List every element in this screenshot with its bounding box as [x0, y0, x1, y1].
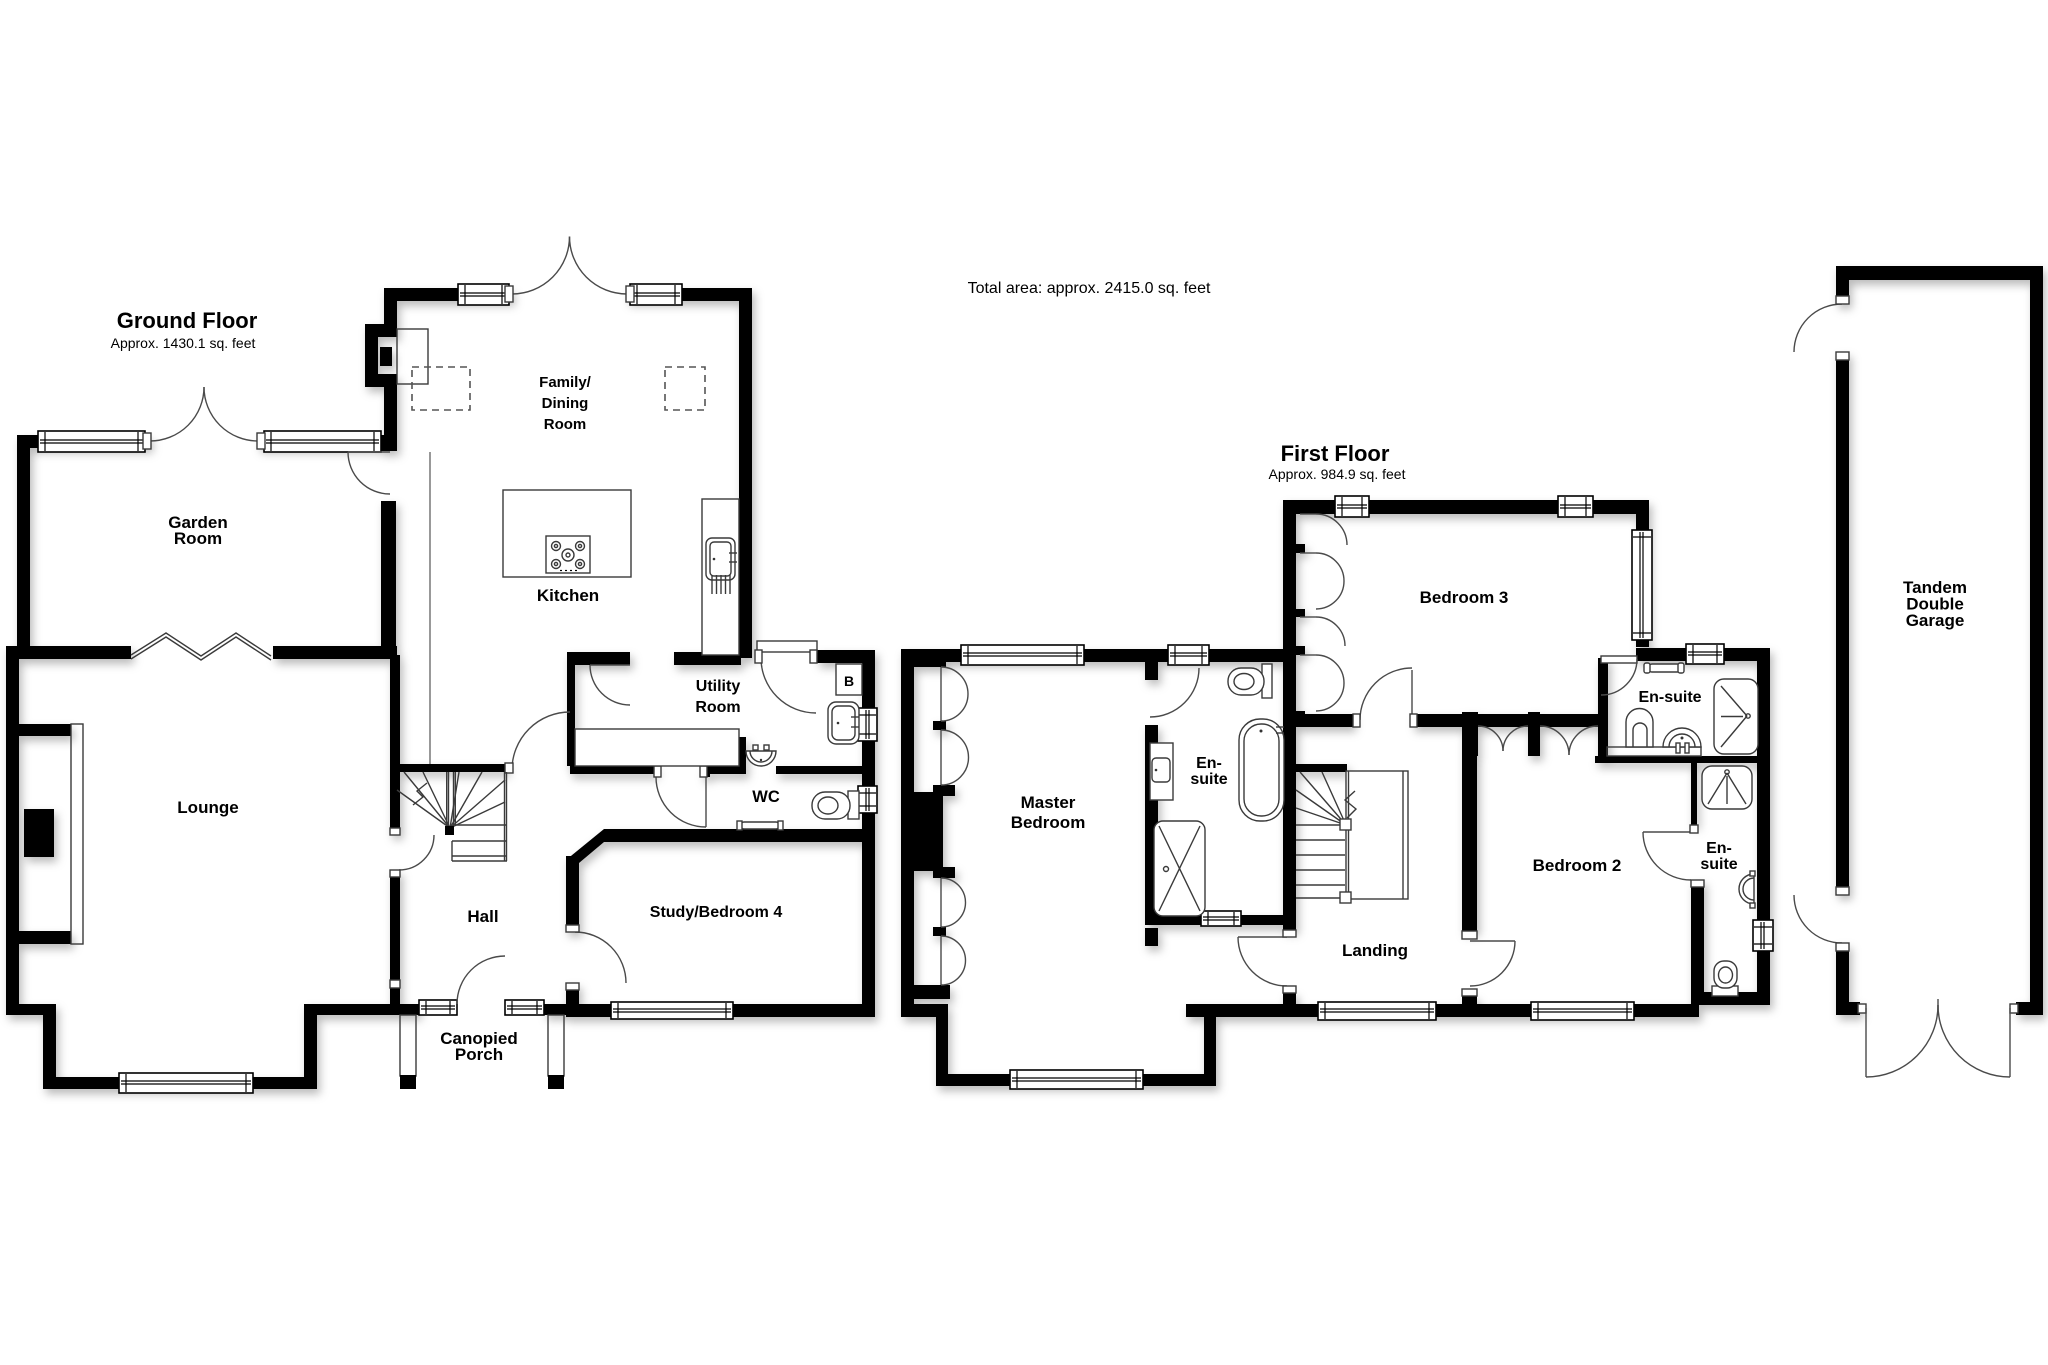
svg-text:Landing: Landing: [1342, 941, 1408, 960]
svg-text:First Floor: First Floor: [1281, 441, 1390, 466]
svg-text:En-: En-: [1706, 840, 1732, 857]
svg-text:En-suite: En-suite: [1638, 689, 1701, 706]
svg-text:Master: Master: [1021, 793, 1076, 812]
svg-text:Room: Room: [544, 416, 587, 433]
svg-text:Utility: Utility: [696, 678, 741, 695]
svg-text:Kitchen: Kitchen: [537, 586, 599, 605]
svg-text:Study/Bedroom 4: Study/Bedroom 4: [650, 904, 783, 921]
svg-text:Hall: Hall: [467, 907, 498, 926]
svg-text:Dining: Dining: [542, 395, 589, 412]
svg-text:B: B: [844, 673, 854, 689]
svg-text:Porch: Porch: [455, 1045, 503, 1064]
svg-text:Approx. 1430.1 sq. feet: Approx. 1430.1 sq. feet: [111, 335, 256, 351]
svg-text:Family/: Family/: [539, 374, 592, 391]
svg-text:suite: suite: [1700, 856, 1737, 873]
svg-text:Room: Room: [695, 699, 740, 716]
svg-text:En-: En-: [1196, 755, 1222, 772]
svg-text:Bedroom 2: Bedroom 2: [1533, 856, 1622, 875]
svg-text:Lounge: Lounge: [177, 798, 238, 817]
svg-text:Approx. 984.9 sq. feet: Approx. 984.9 sq. feet: [1269, 466, 1406, 482]
svg-text:Bedroom: Bedroom: [1011, 813, 1086, 832]
svg-text:Room: Room: [174, 529, 222, 548]
svg-text:Garage: Garage: [1906, 611, 1965, 630]
svg-text:WC: WC: [752, 788, 780, 806]
svg-text:Bedroom 3: Bedroom 3: [1420, 588, 1509, 607]
svg-text:Total area: approx. 2415.0 sq.: Total area: approx. 2415.0 sq. feet: [968, 280, 1211, 297]
svg-text:Ground Floor: Ground Floor: [117, 308, 258, 333]
svg-text:suite: suite: [1190, 771, 1227, 788]
